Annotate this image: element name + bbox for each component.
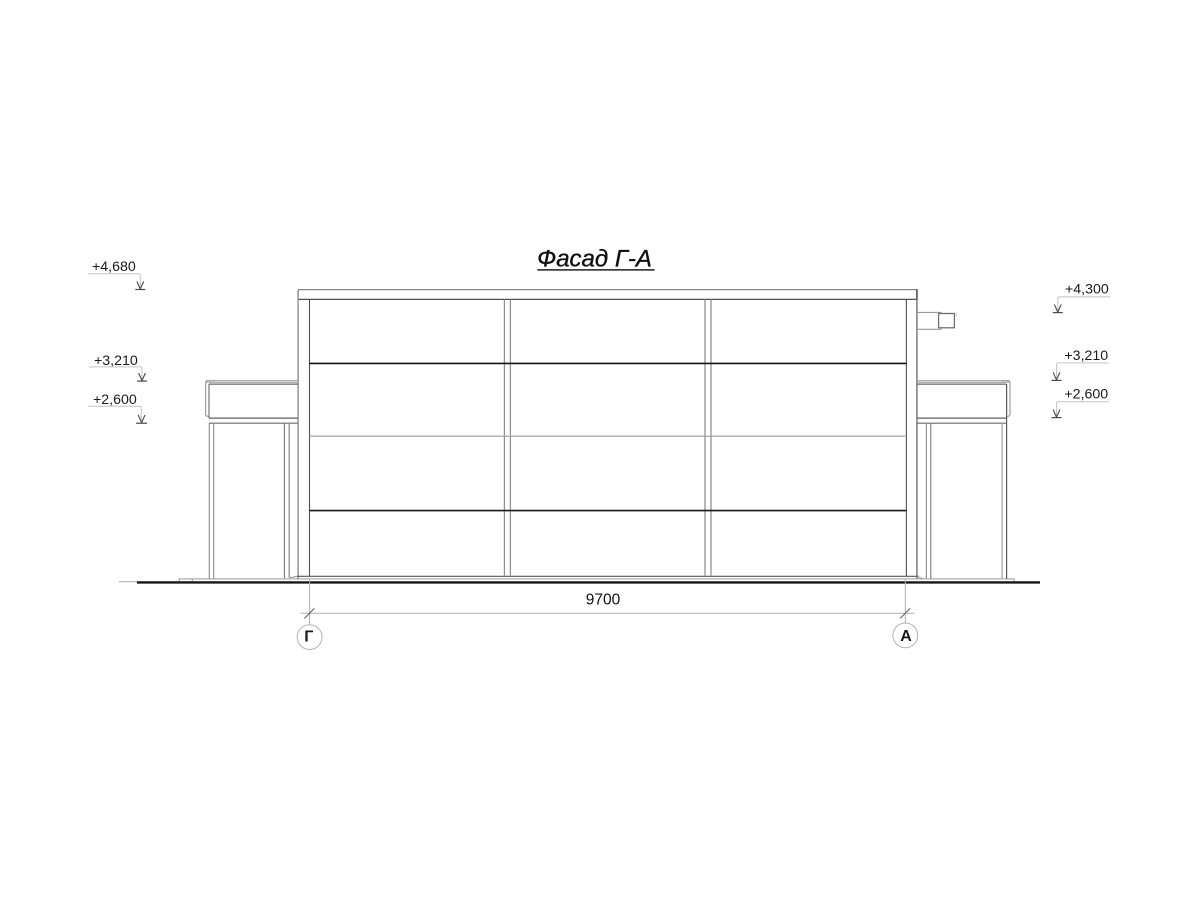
svg-text:А: А (900, 628, 912, 645)
svg-text:Г: Г (304, 628, 313, 645)
svg-text:+4,680: +4,680 (92, 259, 136, 275)
svg-text:9700: 9700 (586, 592, 621, 609)
svg-text:+3,210: +3,210 (1064, 348, 1108, 364)
svg-text:+2,600: +2,600 (1064, 386, 1108, 402)
svg-text:+2,600: +2,600 (93, 392, 137, 408)
svg-text:+4,300: +4,300 (1065, 282, 1109, 298)
svg-text:Фасад Г-А: Фасад Г-А (537, 246, 652, 273)
